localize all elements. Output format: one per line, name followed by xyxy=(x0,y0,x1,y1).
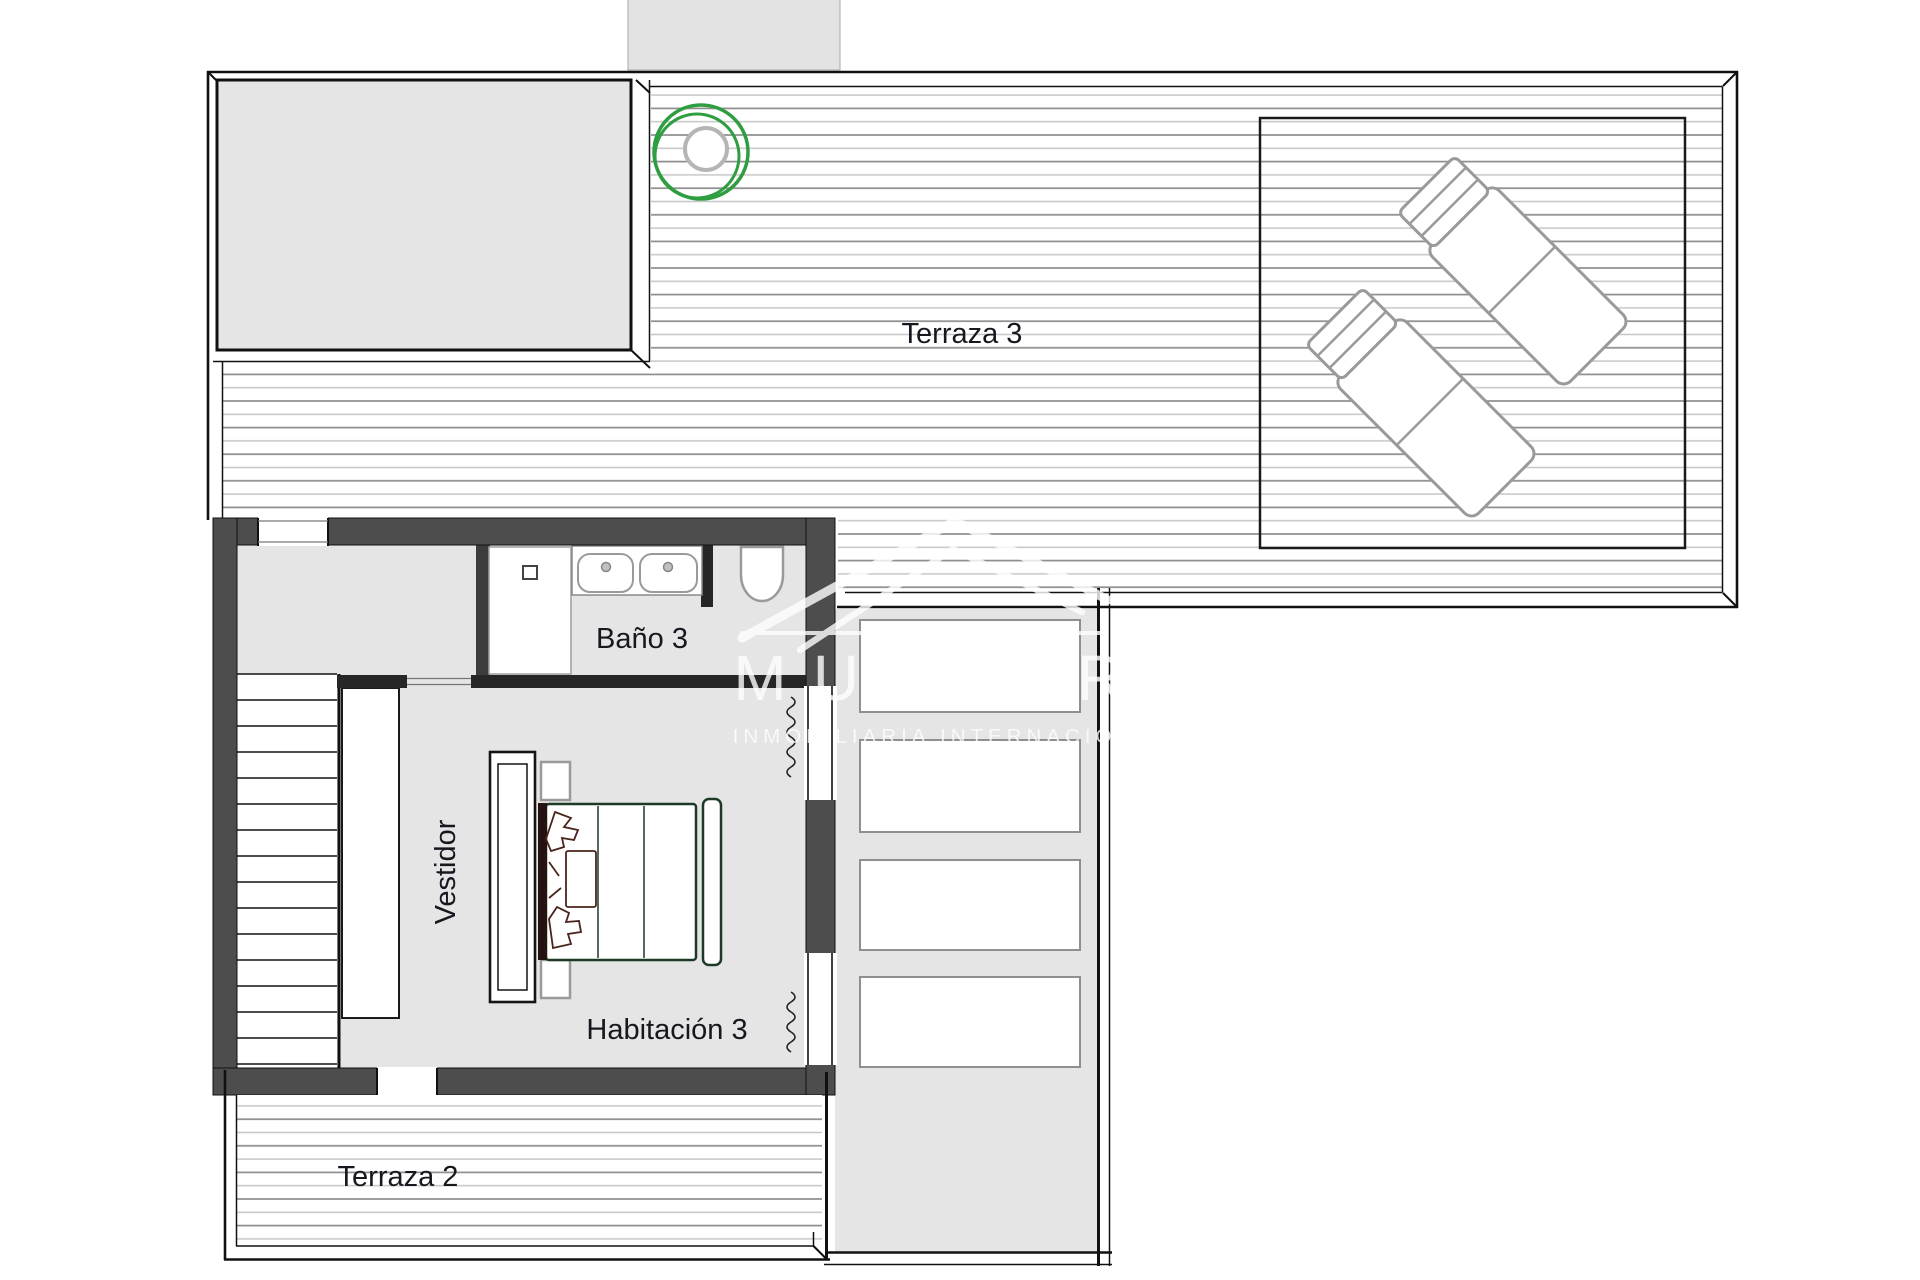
bedroom-suite: Baño 3 Vestidor Habitación 3 xyxy=(213,517,837,1096)
terraza-3-area: Terraza 3 xyxy=(207,0,1738,608)
terraza-2-label: Terraza 2 xyxy=(338,1161,459,1193)
exterior-wall-bottom xyxy=(213,1068,835,1095)
white-box-2 xyxy=(860,740,1080,832)
terraza-3-decking-left xyxy=(223,373,651,518)
window-right-lower xyxy=(804,953,837,1065)
habitacion-3-label: Habitación 3 xyxy=(586,1014,747,1046)
watermark-letter-m: M xyxy=(733,642,786,714)
watermark-subtext: INMOBILIARIA INTERNACIONAL xyxy=(733,725,1172,748)
headboard xyxy=(538,803,547,960)
footboard xyxy=(703,799,721,965)
floor-plan-page: Terraza 3 xyxy=(0,0,1920,1280)
landing-shower-wall xyxy=(476,545,490,678)
stair-well xyxy=(237,674,337,1068)
nightstand-top xyxy=(541,762,570,800)
double-bed xyxy=(538,799,721,965)
floor-plan-canvas: Terraza 3 xyxy=(0,0,1920,1280)
top-left-room xyxy=(217,80,631,350)
nightstand-bottom xyxy=(541,960,570,998)
bano-3-label: Baño 3 xyxy=(596,623,688,655)
faucet-left xyxy=(602,563,611,572)
vestidor-label: Vestidor xyxy=(430,819,462,924)
terrace-door-opening-bottom xyxy=(377,1067,437,1096)
watermark-letter-r: R xyxy=(1077,642,1123,714)
faucet-right xyxy=(664,563,673,572)
sink-left xyxy=(578,554,633,592)
shower-drain xyxy=(523,566,537,579)
white-box-3 xyxy=(860,860,1080,950)
toilet xyxy=(741,547,783,601)
sink-right xyxy=(640,554,697,592)
terraza-3-label: Terraza 3 xyxy=(902,318,1023,350)
double-sink-vanity xyxy=(572,546,702,595)
watermark-letter-u: U xyxy=(813,642,859,714)
stair-guard-strip xyxy=(342,688,399,1018)
exterior-wall-left xyxy=(213,518,237,1095)
wardrobe xyxy=(490,752,535,1002)
right-walkway-strip xyxy=(824,588,1112,1266)
terrace-door-opening-top xyxy=(258,517,328,546)
bath-bedroom-wall-left xyxy=(337,675,407,688)
terraza-2-area: Terraza 2 xyxy=(224,1070,830,1260)
top-gray-block xyxy=(628,0,840,70)
white-box-4 xyxy=(860,977,1080,1067)
bath-partition xyxy=(701,545,713,607)
terraza-2-decking xyxy=(236,1095,822,1246)
staircase xyxy=(237,674,339,1068)
